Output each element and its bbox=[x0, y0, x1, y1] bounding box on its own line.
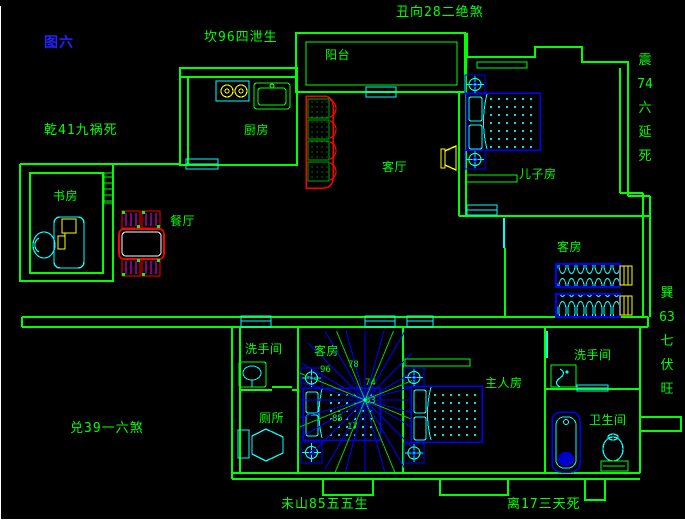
room-label-guest-room: 客房 bbox=[557, 241, 582, 253]
washbasin-left bbox=[239, 362, 266, 387]
toilet-left bbox=[238, 429, 283, 461]
kitchen-sink bbox=[254, 83, 290, 109]
compass-number: 63 bbox=[365, 397, 376, 406]
annotation-chou: 丑向28二绝煞 bbox=[396, 6, 484, 19]
nightstand-lamp-icon bbox=[465, 150, 485, 169]
room-label-balcony: 阳台 bbox=[325, 49, 350, 61]
room-label-washroom-left: 洗手间 bbox=[245, 343, 283, 355]
bottom-right-jog bbox=[640, 417, 681, 431]
compass-number: 74 bbox=[365, 379, 376, 388]
dining-chair bbox=[142, 259, 160, 276]
guest-bed bbox=[556, 294, 632, 317]
annotation-wei: 未山85五五生 bbox=[281, 498, 369, 511]
bathtub bbox=[552, 412, 580, 472]
room-label-kitchen: 厨房 bbox=[244, 124, 269, 136]
nightstand-lamp-icon bbox=[404, 368, 424, 387]
window bbox=[577, 385, 608, 391]
annotation-xun: 巽 63 七 伏 旺 bbox=[655, 287, 679, 396]
nightstand-lamp-icon bbox=[301, 442, 322, 463]
nightstand-lamp-icon bbox=[404, 443, 424, 463]
annotation-zhen: 震 74 六 延 死 bbox=[633, 54, 657, 163]
compass-number: 85 bbox=[332, 415, 343, 424]
room-label-master-bedroom: 主人房 bbox=[485, 377, 523, 389]
porch-steps-2 bbox=[440, 479, 508, 495]
room-label-washroom-right: 洗手间 bbox=[574, 349, 612, 361]
window bbox=[467, 205, 497, 215]
desk-shelf bbox=[466, 175, 517, 182]
compass-number: 96 bbox=[320, 366, 331, 375]
room-label-living-room: 客厅 bbox=[382, 161, 407, 173]
room-label-stair-room: 客房 bbox=[314, 345, 339, 357]
study-door-steps bbox=[104, 173, 113, 203]
master-shelf bbox=[405, 359, 470, 366]
room-label-bathroom: 卫生间 bbox=[589, 414, 627, 426]
compass-number: 17 bbox=[347, 423, 358, 432]
window bbox=[366, 87, 396, 97]
sofa bbox=[306, 96, 336, 188]
room-label-sons-room: 儿子房 bbox=[519, 168, 557, 180]
sons-room-left-wall bbox=[459, 33, 650, 216]
room-label-study: 书房 bbox=[53, 190, 78, 202]
floor-plan-canvas: 图六 坎96四泄生 丑向28二绝煞 乾41九祸死 兑39一六煞 未山85五五生 … bbox=[0, 0, 685, 520]
screen-edge-line-left bbox=[0, 6, 1, 520]
window bbox=[186, 159, 218, 169]
figure-label: 图六 bbox=[44, 36, 74, 50]
bath-mat bbox=[601, 461, 628, 471]
office-chair bbox=[33, 232, 55, 258]
annotation-qian: 乾41九祸死 bbox=[44, 124, 118, 137]
bed-sons bbox=[466, 93, 540, 150]
computer bbox=[58, 219, 76, 249]
floor-plan-svg bbox=[0, 0, 685, 520]
tv bbox=[441, 146, 456, 170]
guest-bed-pillow bbox=[620, 266, 632, 285]
toilet-right bbox=[601, 434, 628, 471]
porch-steps-1 bbox=[323, 479, 373, 495]
nightstand-lamp-icon bbox=[465, 75, 485, 94]
annotation-kan: 坎96四泄生 bbox=[204, 31, 278, 44]
dining-chairs bbox=[122, 211, 160, 276]
bed-master bbox=[411, 386, 482, 442]
main-divider-wall bbox=[22, 317, 648, 327]
stove bbox=[216, 81, 249, 101]
room-label-toilet: 厕所 bbox=[259, 412, 284, 424]
guest-bed bbox=[556, 264, 632, 287]
annotation-li: 离17三天死 bbox=[507, 498, 581, 511]
dining-table bbox=[119, 229, 164, 259]
compass-number: 78 bbox=[348, 361, 359, 370]
washbasin-right bbox=[551, 365, 576, 387]
wardrobe-shelf bbox=[477, 62, 527, 68]
room-label-dining-room: 餐厅 bbox=[170, 215, 195, 227]
dining-chair bbox=[122, 259, 140, 276]
dining-chair bbox=[122, 211, 140, 228]
annotation-dui: 兑39一六煞 bbox=[70, 422, 144, 435]
guest-bed-pillow bbox=[620, 296, 632, 315]
dining-chair bbox=[142, 211, 160, 228]
porch-steps-3 bbox=[585, 479, 605, 500]
